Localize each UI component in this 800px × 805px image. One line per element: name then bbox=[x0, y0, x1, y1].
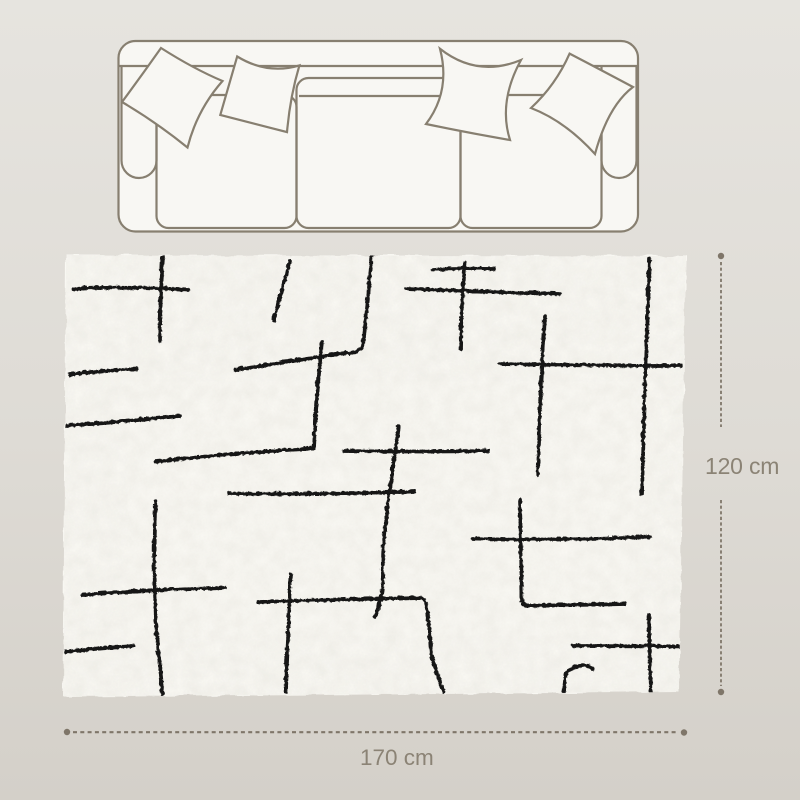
svg-text:120 cm: 120 cm bbox=[705, 453, 779, 479]
svg-text:170 cm: 170 cm bbox=[360, 745, 434, 770]
